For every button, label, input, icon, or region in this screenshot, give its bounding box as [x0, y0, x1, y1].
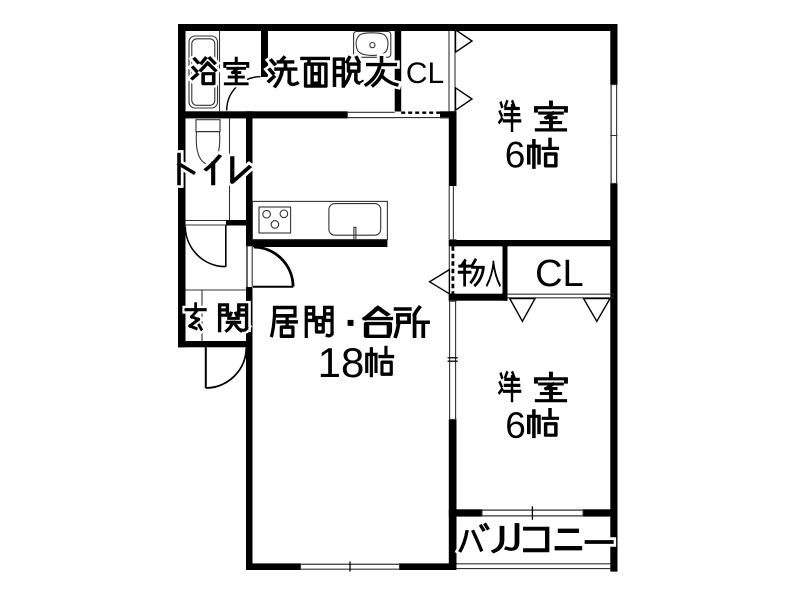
svg-text:18: 18 — [318, 339, 365, 386]
svg-text:6: 6 — [505, 405, 526, 446]
svg-text:6: 6 — [505, 135, 526, 176]
svg-text:CL: CL — [535, 253, 584, 295]
svg-text:CL: CL — [406, 57, 444, 90]
